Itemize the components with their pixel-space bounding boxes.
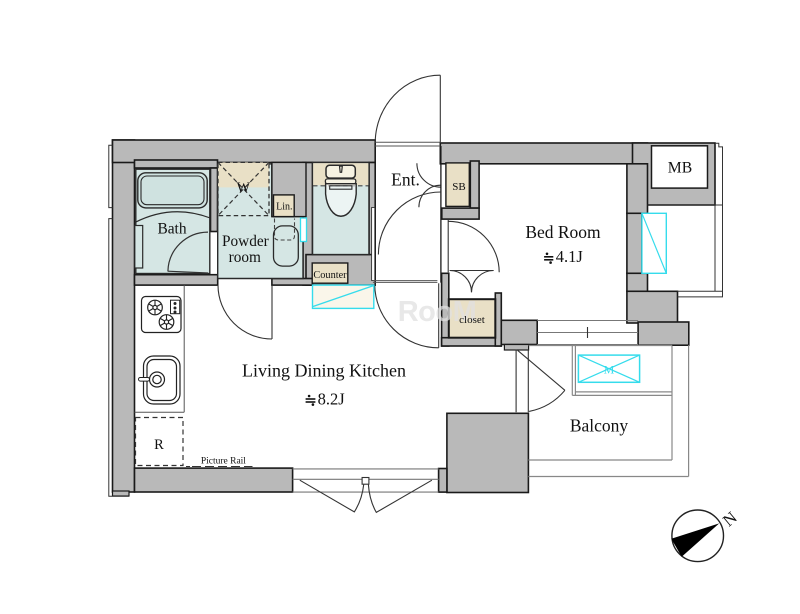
svg-text:Powder: Powder — [222, 233, 269, 250]
svg-text:R: R — [154, 437, 164, 453]
svg-text:Lin.: Lin. — [276, 202, 292, 213]
svg-text:Bath: Bath — [157, 221, 186, 238]
svg-text:W: W — [236, 180, 250, 196]
svg-text:Living Dining Kitchen: Living Dining Kitchen — [242, 361, 406, 381]
svg-text:Bed Room: Bed Room — [525, 222, 601, 242]
svg-text:Counter: Counter — [313, 270, 347, 281]
svg-text:MB: MB — [668, 160, 692, 177]
svg-text:room: room — [229, 249, 261, 266]
svg-text:Ent.: Ent. — [391, 170, 420, 190]
svg-text:M: M — [604, 363, 615, 377]
svg-text:SB: SB — [452, 181, 465, 193]
svg-text:Picture Rail: Picture Rail — [201, 457, 246, 467]
svg-text:Balcony: Balcony — [570, 416, 629, 436]
svg-text:4.1J: 4.1J — [556, 247, 584, 266]
svg-text:8.2J: 8.2J — [318, 390, 346, 409]
svg-text:closet: closet — [459, 314, 485, 326]
